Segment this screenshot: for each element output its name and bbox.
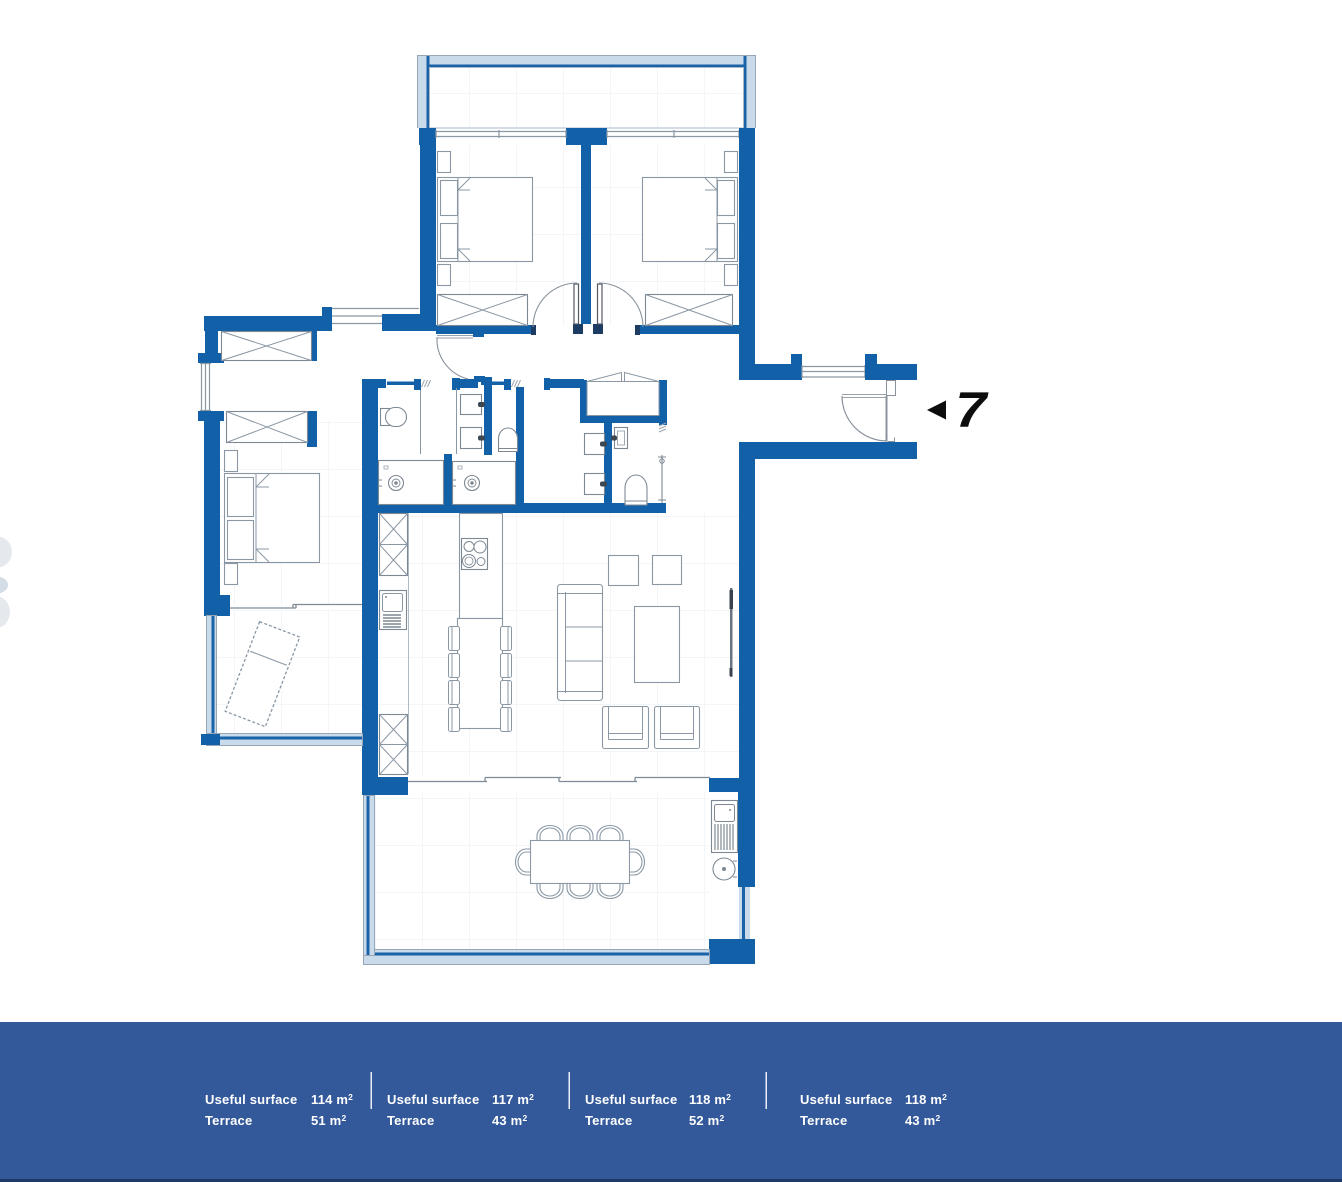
svg-text:Useful surface: Useful surface <box>800 1092 892 1107</box>
svg-text:7: 7 <box>955 383 989 439</box>
svg-text:114 m2: 114 m2 <box>311 1092 353 1107</box>
svg-text:Useful surface: Useful surface <box>585 1092 677 1107</box>
svg-text:Terrace: Terrace <box>205 1113 252 1128</box>
svg-text:118 m2: 118 m2 <box>905 1092 947 1107</box>
svg-text:Terrace: Terrace <box>585 1113 632 1128</box>
svg-text:Terrace: Terrace <box>387 1113 434 1128</box>
svg-text:51 m2: 51 m2 <box>311 1113 346 1128</box>
svg-text:Terrace: Terrace <box>800 1113 847 1128</box>
svg-text:117 m2: 117 m2 <box>492 1092 534 1107</box>
svg-text:43 m2: 43 m2 <box>905 1113 940 1128</box>
svg-text:Useful surface: Useful surface <box>387 1092 479 1107</box>
svg-text:43 m2: 43 m2 <box>492 1113 527 1128</box>
svg-text:52 m2: 52 m2 <box>689 1113 724 1128</box>
svg-text:Useful surface: Useful surface <box>205 1092 297 1107</box>
svg-text:118 m2: 118 m2 <box>689 1092 731 1107</box>
